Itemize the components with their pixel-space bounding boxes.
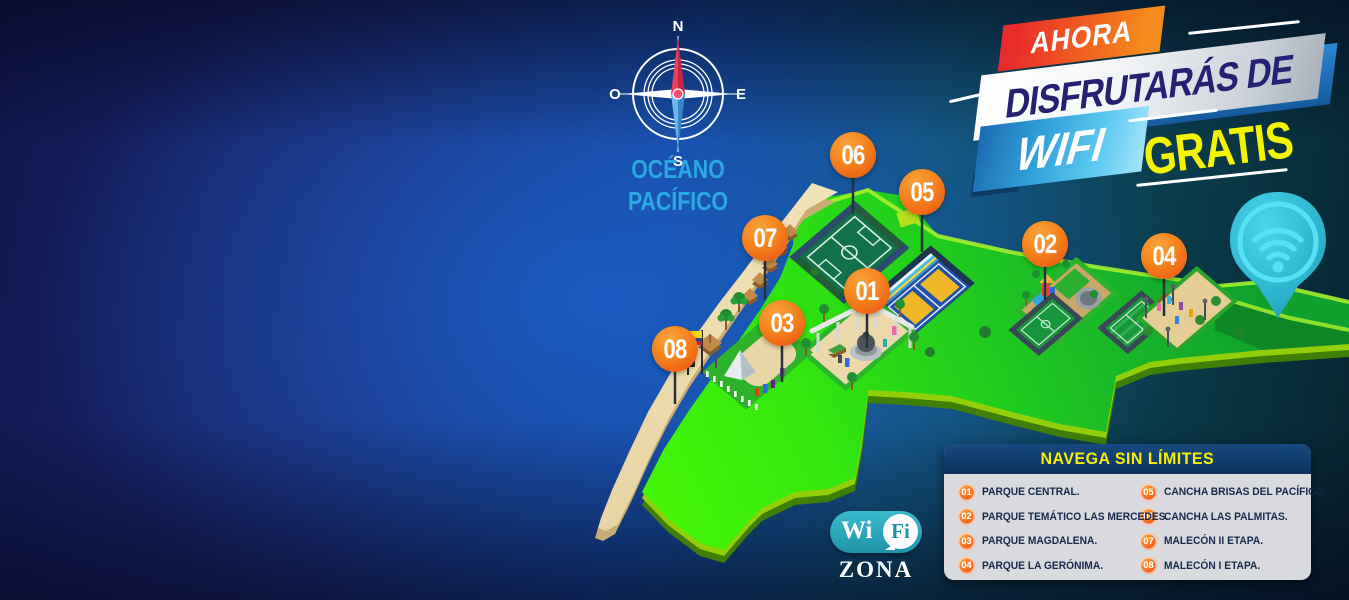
legend-item-label: PARQUE TEMÁTICO LAS MERCEDES. bbox=[982, 511, 1168, 523]
map-marker-05[interactable]: 05 bbox=[899, 169, 945, 215]
legend-item-04: 04 PARQUE LA GERÓNIMA. bbox=[958, 554, 1140, 579]
legend-item-02: 02 PARQUE TEMÁTICO LAS MERCEDES. bbox=[958, 505, 1140, 530]
legend-item-number: 04 bbox=[958, 557, 975, 574]
legend-item-08: 08 MALECÓN I ETAPA. bbox=[1140, 554, 1303, 579]
map-marker-06[interactable]: 06 bbox=[830, 132, 876, 178]
legend-item-label: CANCHA LAS PALMITAS. bbox=[1164, 511, 1288, 523]
legend-item-06: 06 CANCHA LAS PALMITAS. bbox=[1140, 505, 1303, 530]
legend-item-label: PARQUE MAGDALENA. bbox=[982, 535, 1097, 547]
ocean-label: OCÉANO PACÍFICO bbox=[614, 153, 742, 217]
legend-title: NAVEGA SIN LÍMITES bbox=[1041, 449, 1215, 469]
legend-item-number: 03 bbox=[958, 533, 975, 550]
wifi-zona-wi-label: Wi bbox=[841, 517, 873, 545]
legend-item-07: 07 MALECÓN II ETAPA. bbox=[1140, 529, 1303, 554]
legend-panel: NAVEGA SIN LÍMITES 01 PARQUE CENTRAL. 02… bbox=[944, 444, 1311, 580]
wifi-zona-logo: Wi Fi ZONA bbox=[828, 511, 924, 583]
legend-item-number: 02 bbox=[958, 508, 975, 525]
legend-item-label: PARQUE CENTRAL. bbox=[982, 486, 1080, 498]
compass-icon: N S O E bbox=[608, 18, 748, 168]
compass-north-label: N bbox=[673, 18, 684, 35]
legend-item-label: CANCHA BRISAS DEL PACÍFICO. bbox=[1164, 486, 1326, 498]
wifi-zona-pill: Wi Fi bbox=[830, 511, 922, 553]
compass-east-label: E bbox=[736, 86, 746, 103]
legend-item-number: 08 bbox=[1140, 557, 1157, 574]
wifi-gratis-poster: N S O E OCÉANO PACÍFICO DISFRUTARÁS DE A… bbox=[0, 0, 1349, 600]
legend-item-label: MALECÓN II ETAPA. bbox=[1164, 535, 1263, 547]
legend-list: 01 PARQUE CENTRAL. 02 PARQUE TEMÁTICO LA… bbox=[944, 474, 1311, 580]
map-marker-07[interactable]: 07 bbox=[742, 215, 788, 261]
legend-item-03: 03 PARQUE MAGDALENA. bbox=[958, 529, 1140, 554]
ocean-label-line2: PACÍFICO bbox=[614, 185, 742, 217]
legend-item-number: 05 bbox=[1140, 484, 1157, 501]
map-marker-04[interactable]: 04 bbox=[1141, 233, 1187, 279]
legend-item-label: PARQUE LA GERÓNIMA. bbox=[982, 560, 1103, 572]
legend-header: NAVEGA SIN LÍMITES bbox=[944, 444, 1311, 474]
map-marker-01[interactable]: 01 bbox=[844, 268, 890, 314]
legend-item-05: 05 CANCHA BRISAS DEL PACÍFICO. bbox=[1140, 480, 1303, 505]
legend-item-label: MALECÓN I ETAPA. bbox=[1164, 560, 1260, 572]
headline-line3: WIFI bbox=[1014, 116, 1108, 182]
compass-west-label: O bbox=[609, 86, 621, 103]
wifi-pin-icon bbox=[1222, 186, 1334, 326]
legend-item-number: 07 bbox=[1140, 533, 1157, 550]
ocean-label-line1: OCÉANO bbox=[614, 153, 742, 185]
map-marker-02[interactable]: 02 bbox=[1022, 221, 1068, 267]
legend-item-01: 01 PARQUE CENTRAL. bbox=[958, 480, 1140, 505]
wifi-zona-fi-bubble: Fi bbox=[883, 514, 918, 549]
map-marker-03[interactable]: 03 bbox=[759, 300, 805, 346]
legend-item-number: 01 bbox=[958, 484, 975, 501]
map-marker-08[interactable]: 08 bbox=[652, 326, 698, 372]
headline-line1: AHORA bbox=[1029, 15, 1135, 61]
wifi-zona-zona-label: ZONA bbox=[828, 557, 924, 583]
